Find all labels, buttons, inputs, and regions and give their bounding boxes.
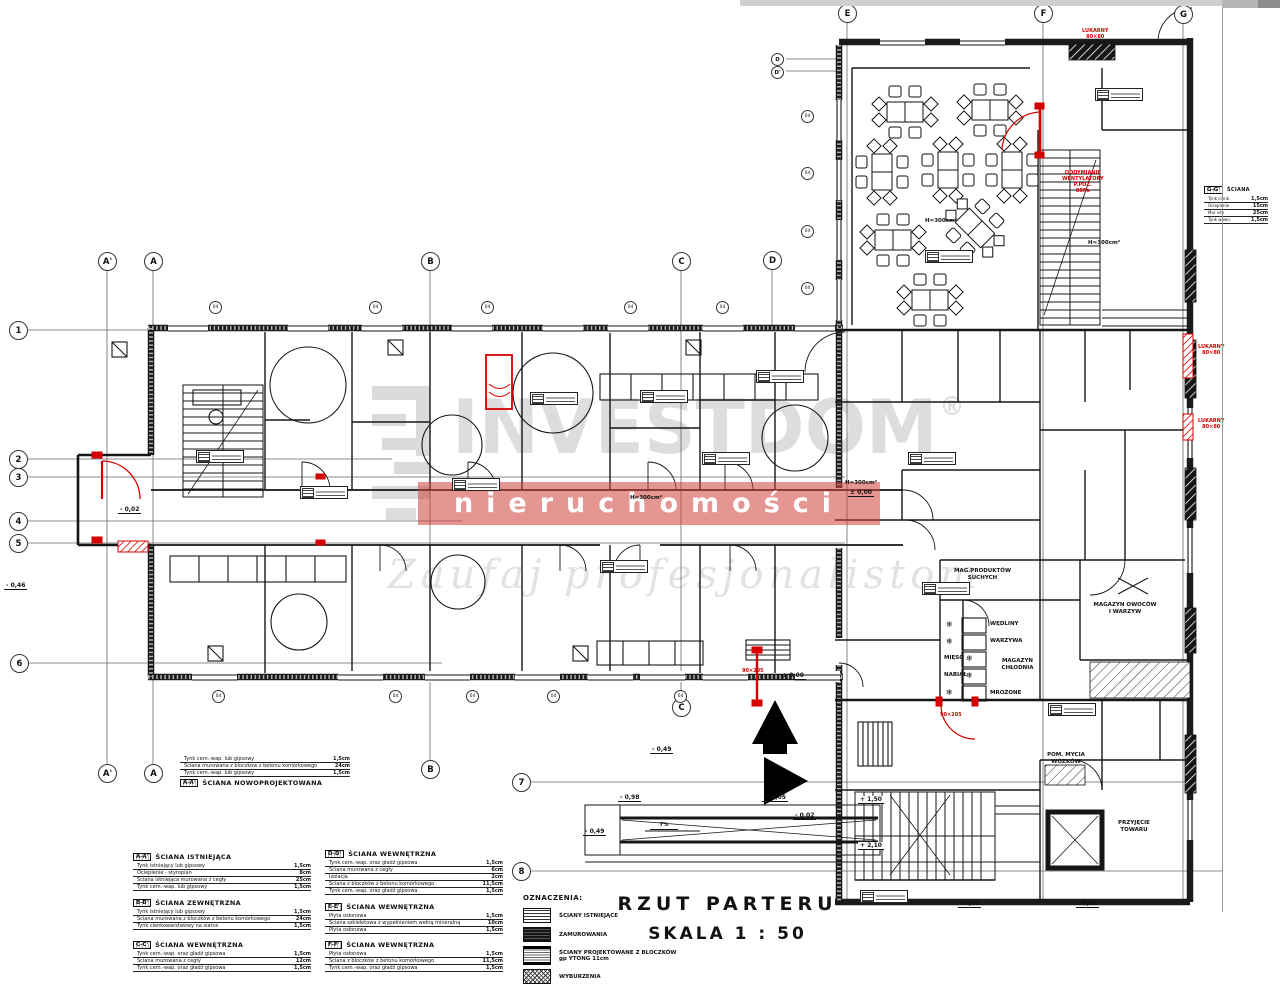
room-tag-box [1095,88,1143,101]
wall-table-new-designed: Tynk cem.-wap. lub gipsowy1,5cmŚciana mu… [180,756,350,789]
fridge-label: WĘDLINY [990,621,1019,628]
wall-layer-row: Tynk cem.-wap. oraz gładź gipsowa1,5cm [325,888,503,895]
scan-strip [1222,0,1258,8]
wall-layer-row: Tynk cienkowarstwowy na siatce1,5cm [133,923,311,930]
wall-layer-row: Ściana murowana z bloczków z betonu komó… [133,916,311,923]
height-label: H=300cm² [925,218,957,224]
window-marker: 04 [801,282,814,295]
wall-layer-row: Ściana z bloczków z betonu komórkowego11… [325,881,503,888]
room-tag-box [600,560,648,573]
existing-wall-swatch [523,908,551,923]
window-marker: 04 [481,301,494,314]
legend-heading: OZNACZENIA: [523,894,693,902]
axis-bubble-c-top: C [672,252,691,271]
legend-item-existing-walls: ŚCIANY ISTNIEJĄCE [523,908,693,923]
axis-bubble-a-top: A [144,252,163,271]
wall-layer-row: Ściana murowana z cegły6cm [325,867,503,874]
axis-bubble-e: E [838,4,857,23]
legend-item-demolitions: WYBURZENIA [523,969,693,984]
room-tag-box [860,890,908,903]
axis-bubble-a-prime-top: A' [98,252,117,271]
axis-bubble-b-bottom: B [421,760,440,779]
window-marker: 04 [801,110,814,123]
legend: OZNACZENIA: ŚCIANY ISTNIEJĄCE ZAMUROWANI… [523,894,693,988]
wall-layer-row: Tynk cem.-wap. lub gipsowy1,5cm [180,756,350,763]
wall-layer-row: Tynk cem.-wap. oraz gładź gipsowa1,5cm [133,965,311,972]
wall-layer-row: Tynk wewn.1,5cm [1204,217,1268,224]
snowflake-icon: ❄ [946,688,953,697]
red-door-size: 90×205 [940,712,962,718]
room-tag-box [702,452,750,465]
elevation-mark: + 0,05 [762,794,788,802]
ramp-slope-label: 7% [650,822,678,830]
elevation-mark: - 0,05 [958,900,981,908]
elevation-mark: - 0,49 [583,828,606,836]
red-note-lukarny-top: LUKARNY80×80 [1082,28,1108,40]
legend-item-designed-walls: ŚCIANY PROJEKTOWANE Z BLOCZKÓW gp YTONG … [523,946,693,965]
wall-layer-row: Tynk cem.-wap. lub gipsowy1,5cm [133,884,311,891]
axis-bubble-d-prime-small: D' [771,66,784,79]
wall-table-existing: A-A' ŚCIANA ISTNIEJĄCA Tynk istniejący l… [133,853,311,891]
wall-table-g: G-G' ŚCIANA Tynk cienk.1,5cmOcieplenie15… [1204,186,1268,224]
wall-layer-row: Tynk cienk.1,5cm [1204,196,1268,203]
room-tag-box [756,370,804,383]
axis-bubble-2: 2 [9,450,28,469]
wall-layer-row: Ściana murowana z cegły12cm [133,958,311,965]
window-marker: 04 [801,167,814,180]
window-marker: 04 [801,225,814,238]
height-label: H=300cm² [845,480,877,486]
room-tag-box [925,250,973,263]
wall-layer-row: Ściana szkieletowa z wypełnieniem wełną … [325,920,503,927]
wall-table-internal-f: F-F' ŚCIANA WEWNĘTRZNA Płyta osłonowa1,5… [325,941,503,972]
scan-strip [1258,0,1280,8]
wall-layer-row: Tynk istniejący lub gipsowy1,5cm [133,863,311,870]
axis-bubble-b-top: B [421,252,440,271]
elevation-mark: - 0,98 [618,794,641,802]
elevation-mark: ± 0,00 [848,489,874,497]
axis-bubble-6: 6 [10,654,29,673]
wall-layer-row: Tynk cem.-wap. oraz gładź gipsowa1,5cm [325,965,503,972]
elevation-mark: - 0,49 [650,746,673,754]
wall-table-external: B-B' ŚCIANA ZEWNĘTRZNA Tynk istniejący l… [133,899,311,930]
room-label-cold-storage: MAGAZYNCHŁODNIA [990,658,1045,671]
wall-layer-row: Płyta osłonowa1,5cm [325,951,503,958]
height-label: H=300cm² [1088,240,1120,246]
red-note-smoke-vent: ODDYMIANIEWENTYLATORY P.POŻ.80Pa [1062,170,1104,194]
room-label-fruit-storage: MAGAZYN OWOCÓWI WARZYW [1090,602,1160,615]
wall-layer-row: Ściana z bloczków z betonu komórkowego11… [325,958,503,965]
room-tag-box [908,452,956,465]
room-tag-box [452,478,500,491]
axis-bubble-a-bottom: A [144,764,163,783]
snowflake-icon: ❄ [966,654,973,663]
window-marker: 04 [369,301,382,314]
axis-bubble-a-prime-bottom: A' [98,764,117,783]
snowflake-icon: ❄ [946,637,953,646]
axis-bubble-g: G [1174,5,1193,24]
window-marker: 04 [466,690,479,703]
fridge-label: WARZYWA [990,638,1022,645]
floor-plan-sheet: INVESTDOM® Zaufaj profesjonalistom [0,0,1280,998]
elevation-mark: ± 0,00 [780,672,806,680]
fridge-label: MROŻONE [990,690,1021,697]
fridge-label: NABIAŁ [944,672,967,679]
wall-layer-row: Płyta osłonowa1,5cm [325,927,503,934]
axis-bubble-8: 8 [512,862,531,881]
window-marker: 04 [624,301,637,314]
elevation-mark: - 0,02 [1076,900,1099,908]
room-tag-box [922,582,970,595]
room-tag-box [530,392,578,405]
axis-bubble-d-small: D [771,53,784,66]
frame-line [1222,8,1223,912]
legend-item-bricked-up: ZAMUROWANIA [523,927,693,942]
elevation-mark: - 0,02 [793,812,816,820]
wall-layer-row: Tynk cem.-wap. lub gipsowy1,5cm [180,770,350,777]
room-tag-box [196,450,244,463]
axis-bubble-f: F [1034,4,1053,23]
wall-layer-row: Tynk cem.-wap. oraz gładź gipsowa1,5cm [133,951,311,958]
scan-strip [740,0,1222,6]
window-marker: 04 [716,301,729,314]
room-label-goods-in: PRZYJĘCIETOWARU [1108,820,1160,833]
wall-table-internal-d: D-D' ŚCIANA WEWNĘTRZNA Tynk cem.-wap. or… [325,850,503,895]
window-marker: 04 [547,690,560,703]
wall-layer-row: Ocieplenie15cm [1204,203,1268,210]
axis-bubble-1: 1 [9,321,28,340]
elevation-mark: - 0,02 [118,506,141,514]
axis-bubble-3: 3 [9,468,28,487]
red-note-lukarny-side: LUKARNY80×80 [1198,418,1224,430]
elevation-mark: + 1,50 [858,796,884,804]
elevation-mark: - 0,46 [4,582,27,590]
room-label-dry-storage: MAG.PRODUKTÓWSUCHYCH [950,568,1015,581]
wall-layer-row: Izolacja2cm [325,874,503,881]
axis-bubble-d-top: D [763,251,782,270]
window-marker: 04 [209,301,222,314]
room-tag-box [300,486,348,499]
wall-table-internal-e: E-E' ŚCIANA WEWNĘTRZNA Płyta osłonowa1,5… [325,903,503,934]
axis-bubble-7: 7 [512,773,531,792]
wall-layer-row: Tynk istniejący lub gipsowy1,5cm [133,909,311,916]
red-door-size: 90×205 [742,668,764,674]
fridge-label: MIĘSO [944,655,964,662]
axis-bubble-5: 5 [9,534,28,553]
snowflake-icon: ❄ [966,671,973,680]
room-label-cart-wash: POM. MYCIAWÓZKÓW [1040,752,1092,765]
room-tag-box [1048,703,1096,716]
designed-wall-swatch [523,946,551,965]
red-note-lukarny-side: LUKARNY80×80 [1198,344,1224,356]
elevation-mark: + 2,10 [858,842,884,850]
wall-layer-row: Tynk cem.-wap. oraz gładź gipsowa1,5cm [325,860,503,867]
wall-layer-row: Ściana murowana z bloczków z betonu komó… [180,763,350,770]
wall-layer-row: Ściana istniejąca murowana z cegły25cm [133,877,311,884]
bricked-up-swatch [523,927,551,942]
window-marker: 04 [212,690,225,703]
wall-layer-row: Płyta osłonowa1,5cm [325,913,503,920]
axis-bubble-4: 4 [9,512,28,531]
window-marker: 04 [389,690,402,703]
height-label: H=300cm² [630,495,662,501]
wall-table-internal-c: C-C' ŚCIANA WEWNĘTRZNA Tynk cem.-wap. or… [133,941,311,972]
wall-layer-row: Ocieplenie - styropian8cm [133,870,311,877]
room-tag-box [640,390,688,403]
wall-layer-row: Mur istn.25cm [1204,210,1268,217]
window-marker: 04 [674,690,687,703]
snowflake-icon: ❄ [946,620,953,629]
demolition-swatch [523,969,551,984]
